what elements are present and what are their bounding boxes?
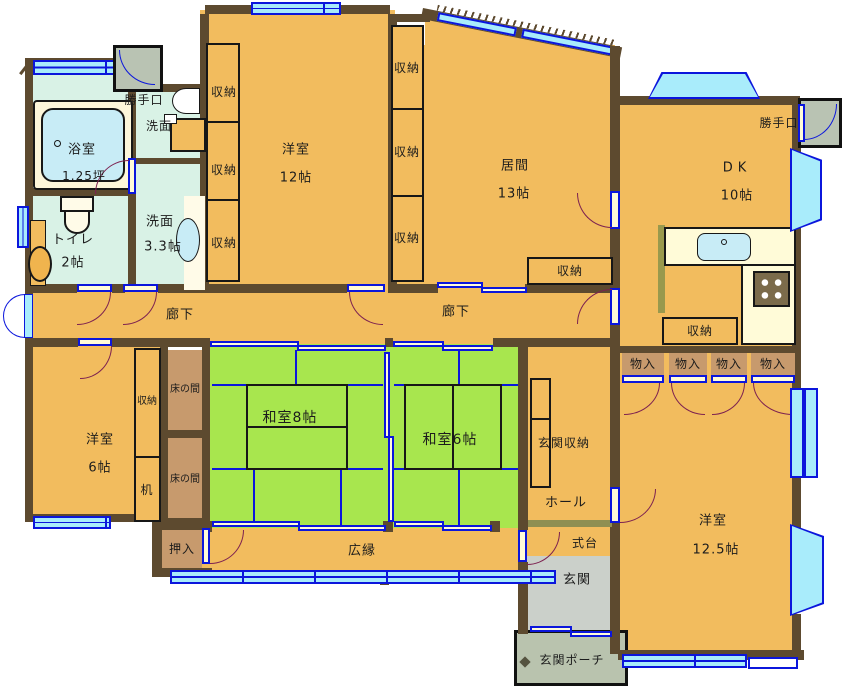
label-living-name: 居間 (501, 160, 529, 173)
door-leaf (347, 284, 385, 292)
wall (385, 338, 393, 347)
door-swing (3, 294, 25, 316)
fusuma (394, 521, 444, 527)
stove (753, 271, 790, 307)
label-entrance: 玄関 (563, 574, 591, 587)
fusuma (297, 345, 386, 351)
fusuma (212, 521, 300, 527)
label-living-size: 13帖 (498, 188, 531, 201)
kitchen-sink (697, 233, 751, 261)
label-storage: 収納 (211, 86, 237, 98)
tatami-line (295, 350, 297, 384)
door-swing (3, 316, 25, 338)
label-storage: 収納 (394, 62, 420, 74)
wall (202, 346, 210, 530)
room-entrance (522, 556, 614, 632)
closet-door (669, 375, 707, 383)
tatami-line (458, 350, 460, 384)
label-bath-name: 浴室 (68, 144, 96, 157)
label-desk: 机 (140, 484, 153, 496)
toilet-basin (28, 246, 52, 282)
label-futon-closet: 押入 (169, 543, 195, 555)
door-leaf (610, 487, 620, 523)
door-leaf (78, 338, 112, 346)
window (170, 570, 556, 584)
wall (128, 194, 136, 290)
wall (168, 430, 202, 438)
utility-sink (172, 88, 200, 114)
wall (610, 346, 620, 489)
wall (25, 338, 78, 347)
door-leaf (518, 530, 527, 562)
bay-window (790, 524, 824, 616)
door-leaf (202, 528, 210, 564)
label-dk-size: 10帖 (721, 190, 754, 203)
label-bath-size: 1.25坪 (62, 170, 106, 182)
wall (133, 158, 205, 164)
closet-door (622, 375, 664, 383)
door-leaf (123, 284, 158, 292)
wall (493, 338, 615, 347)
label-western12-size: 12帖 (280, 172, 313, 185)
window (251, 2, 341, 15)
window (33, 516, 111, 529)
label-toilet-name: トイレ (52, 234, 94, 247)
fusuma (210, 341, 299, 347)
label-western125-name: 洋室 (699, 515, 727, 528)
sliding-door (530, 626, 572, 632)
wall (792, 476, 801, 528)
wall (160, 346, 168, 524)
closet-cell (206, 43, 240, 123)
label-closet: 物入 (716, 358, 742, 370)
sliding-door (437, 282, 483, 288)
tatami-line (253, 470, 255, 526)
window (33, 60, 117, 75)
label-dk-name: DK (723, 162, 752, 175)
label-closet: 物入 (630, 358, 656, 370)
fusuma (388, 436, 394, 522)
sink-drain (721, 239, 727, 245)
label-veranda: 広縁 (348, 545, 376, 558)
label-storage: 収納 (687, 325, 713, 337)
label-closet: 物入 (760, 358, 786, 370)
bathtub-drain (54, 140, 61, 147)
wall (205, 284, 347, 293)
sliding-door (570, 631, 612, 637)
floor-plan: 浴室 1.25坪 勝手口 洗面 収納 収納 収納 洋室 12帖 収納 収納 収納… (0, 0, 846, 689)
double-door-panel (24, 294, 33, 338)
closet-door (711, 375, 747, 383)
label-storage: 収納 (211, 237, 237, 249)
label-wash-size: 3.3帖 (144, 241, 182, 254)
door-leaf (798, 104, 805, 142)
label-porch: 玄関ポーチ (539, 654, 604, 666)
label-western12-name: 洋室 (282, 144, 310, 157)
fusuma (393, 341, 444, 347)
bay-window (790, 148, 822, 232)
label-toilet-size: 2帖 (61, 257, 84, 270)
wall (388, 284, 438, 293)
wall (792, 614, 801, 654)
wall (25, 334, 33, 522)
label-corridor: 廊下 (166, 309, 194, 322)
bay-window (648, 72, 760, 99)
label-storage: 収納 (394, 232, 420, 244)
wall (610, 46, 620, 193)
label-alcove: 床の間 (170, 385, 200, 395)
fusuma (384, 352, 390, 438)
label-western6-size: 6帖 (88, 462, 111, 475)
toilet-bowl (64, 210, 90, 234)
tatami-line (458, 470, 460, 526)
label-back-door-right: 勝手口 (759, 117, 798, 129)
label-closet: 物入 (675, 358, 701, 370)
label-back-door-left: 勝手口 (124, 94, 163, 106)
closet-door (751, 375, 795, 383)
tatami-line (340, 470, 342, 526)
window (622, 654, 747, 668)
door-leaf (128, 158, 136, 194)
closet-cell (206, 121, 240, 201)
label-hall: ホール (545, 497, 587, 510)
window (748, 657, 798, 669)
label-japanese6: 和室6帖 (423, 433, 478, 447)
floor-edge (528, 520, 612, 527)
entrance-storage-cabinet (530, 378, 551, 488)
fusuma (442, 525, 492, 531)
fusuma (298, 525, 386, 531)
label-storage: 収納 (137, 397, 157, 407)
wall (618, 346, 798, 353)
window (17, 206, 29, 248)
room-corridor (25, 285, 615, 345)
window (790, 388, 818, 478)
tatami-line (452, 384, 454, 470)
door-leaf (77, 284, 112, 292)
label-western125-size: 12.5帖 (693, 544, 740, 557)
label-storage: 収納 (394, 146, 420, 158)
label-alcove: 床の間 (170, 475, 200, 485)
label-japanese8: 和室8帖 (263, 411, 318, 425)
label-wash-name: 洗面 (146, 216, 174, 229)
label-storage: 収納 (211, 164, 237, 176)
label-step: 式台 (572, 537, 598, 549)
sliding-door (481, 287, 527, 293)
fusuma (442, 345, 493, 351)
label-western6-name: 洋室 (86, 434, 114, 447)
tatami-line (246, 426, 348, 428)
cabinet-shelf-line (531, 418, 550, 420)
label-storage: 収納 (557, 265, 583, 277)
label-entrance-storage: 玄関収納 (538, 437, 590, 449)
label-wash-top: 洗面 (146, 120, 172, 132)
label-corridor: 廊下 (442, 306, 470, 319)
wall (518, 346, 528, 530)
